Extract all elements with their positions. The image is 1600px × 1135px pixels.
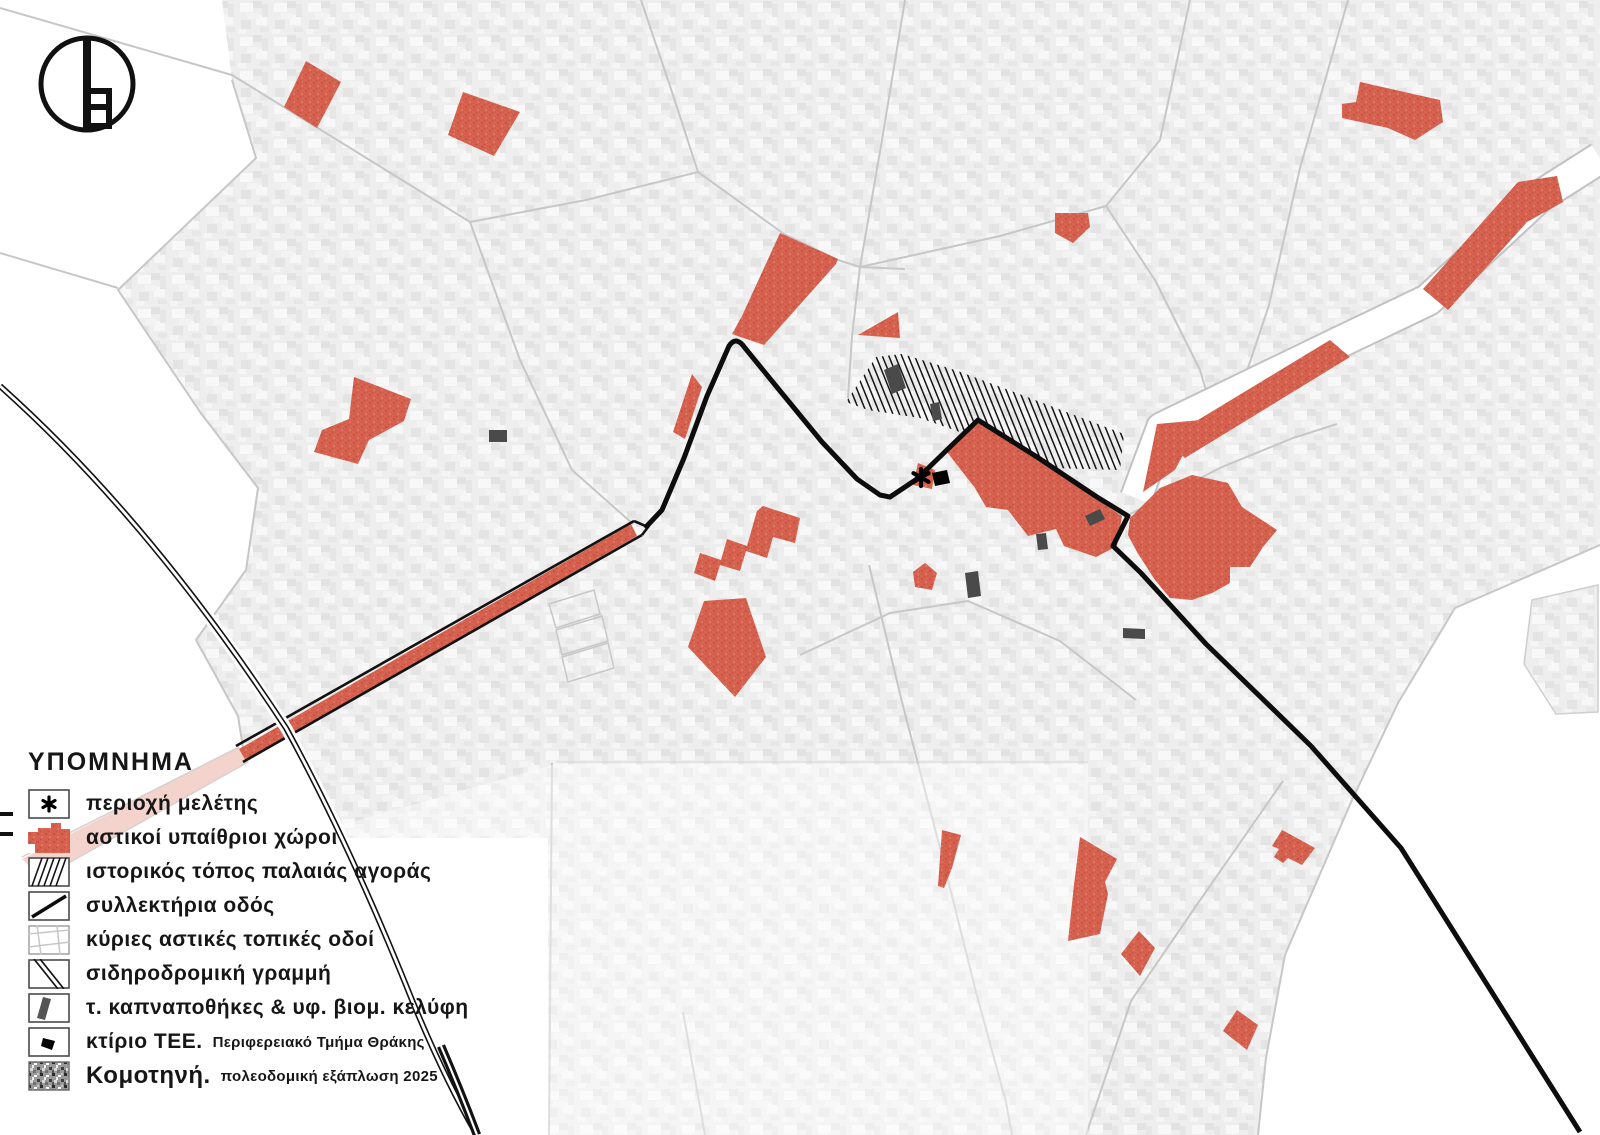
black-square-icon (28, 1027, 70, 1057)
legend-label: περιοχή μελέτης (86, 792, 258, 816)
logo-letter-stem (83, 36, 91, 128)
legend-row-tobacco-warehouses: τ. καπναποθήκες & υφ. βιομ. κελύφη (28, 993, 568, 1023)
thin-gray-lines-icon (28, 925, 70, 955)
legend-label: ιστορικός τόπος παλαιάς αγοράς (86, 860, 431, 884)
legend-row-tee-building: κτίριο ΤΕΕ. Περιφερειακό Τμήμα Θράκης (28, 1027, 568, 1057)
noise-texture-icon (28, 1061, 70, 1091)
legend-row-komotini-expansion: Κομοτηνή. πολεοδομική εξάπλωση 2025 (28, 1061, 568, 1091)
legend-row-study-area: περιοχή μελέτης (28, 789, 568, 819)
legend-label: κτίριο ΤΕΕ. (86, 1030, 203, 1054)
red-polygon-icon (28, 823, 70, 853)
dark-gray-parallelogram-icon (28, 993, 70, 1023)
legend-row-main-local-roads: κύριες αστικές τοπικές οδοί (28, 925, 568, 955)
legend-label: αστικοί υπαίθριοι χώροι (86, 826, 338, 850)
legend: ΥΠΟΜΝΗΜΑ περιοχή μελέτης αστικοί υπαίθρι… (28, 748, 568, 1095)
diagonal-hatch-icon (28, 857, 70, 887)
legend-row-collector-road: συλλεκτήρια οδός (28, 891, 568, 921)
legend-sublabel: πολεοδομική εξάπλωση 2025 (221, 1068, 438, 1085)
legend-row-historic-market: ιστορικός τόπος παλαιάς αγοράς (28, 857, 568, 887)
legend-row-urban-open-spaces: αστικοί υπαίθριοι χώροι (28, 823, 568, 853)
legend-label: σιδηροδρομική γραμμή (86, 962, 331, 986)
legend-label: κύριες αστικές τοπικές οδοί (86, 928, 375, 952)
thick-black-line-icon (28, 891, 70, 921)
warehouse-building (1123, 628, 1145, 639)
komotini-urban-map: ΥΠΟΜΝΗΜΑ περιοχή μελέτης αστικοί υπαίθρι… (0, 0, 1600, 1135)
warehouse-building (489, 430, 507, 442)
logo (41, 36, 133, 130)
asterisk-box-icon (28, 789, 70, 819)
warehouse-building (1036, 533, 1048, 550)
legend-sublabel: Περιφερειακό Τμήμα Θράκης (213, 1034, 425, 1051)
legend-label: συλλεκτήρια οδός (86, 894, 275, 918)
double-line-icon (28, 959, 70, 989)
legend-label: τ. καπναποθήκες & υφ. βιομ. κελύφη (86, 996, 469, 1020)
legend-label: Κομοτηνή. (86, 1062, 211, 1090)
legend-title: ΥΠΟΜΝΗΜΑ (28, 748, 568, 777)
legend-row-railway: σιδηροδρομική γραμμή (28, 959, 568, 989)
